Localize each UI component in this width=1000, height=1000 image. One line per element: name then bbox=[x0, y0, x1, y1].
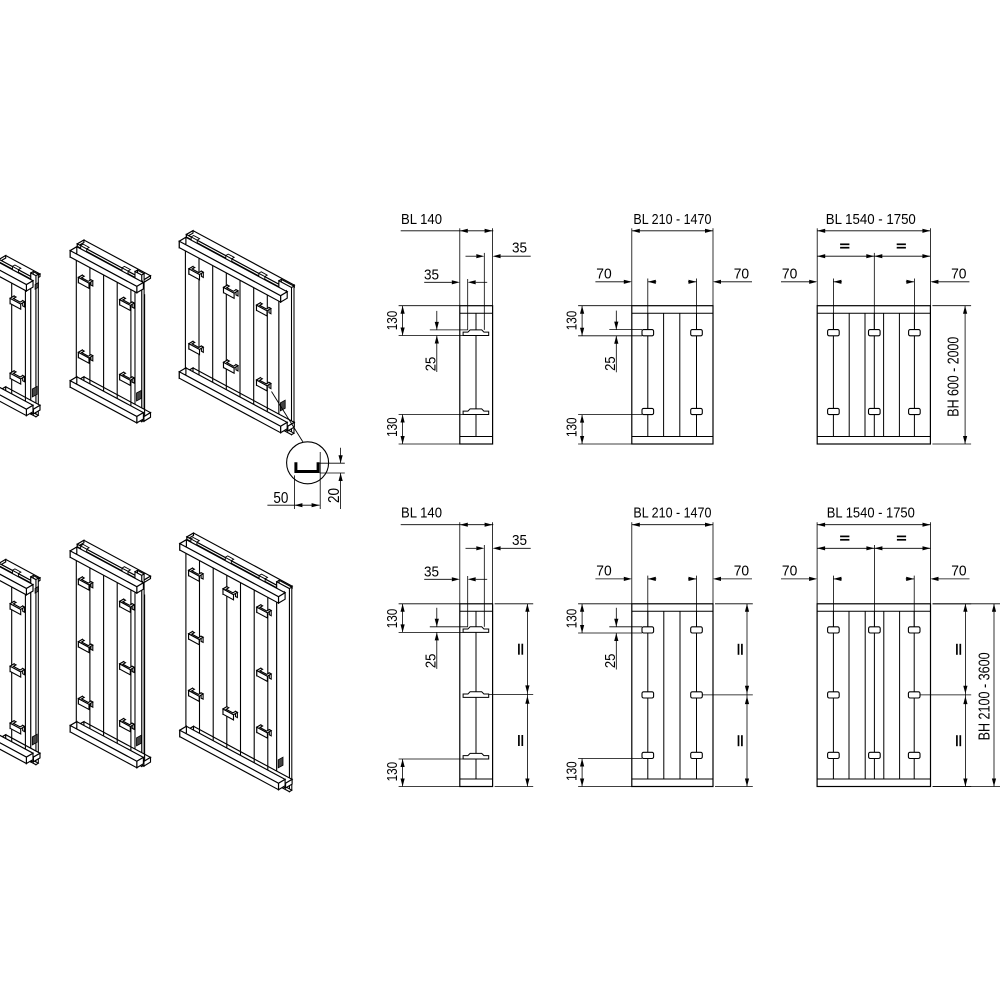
svg-text:130: 130 bbox=[564, 761, 581, 781]
svg-text:BL 140: BL 140 bbox=[401, 211, 442, 228]
svg-text:70: 70 bbox=[951, 265, 966, 282]
svg-text:70: 70 bbox=[951, 562, 966, 579]
svg-text:130: 130 bbox=[564, 311, 581, 331]
svg-text:130: 130 bbox=[384, 417, 401, 437]
svg-text:70: 70 bbox=[596, 265, 611, 282]
svg-text:20: 20 bbox=[326, 488, 343, 503]
svg-text:BL 140: BL 140 bbox=[401, 505, 442, 522]
svg-text:35: 35 bbox=[512, 532, 527, 549]
svg-text:130: 130 bbox=[384, 311, 401, 331]
svg-text:25: 25 bbox=[422, 357, 439, 372]
svg-text:BH 2100 - 3600: BH 2100 - 3600 bbox=[977, 652, 994, 740]
svg-text:35: 35 bbox=[424, 563, 439, 580]
svg-text:130: 130 bbox=[564, 609, 581, 629]
svg-text:70: 70 bbox=[782, 265, 797, 282]
svg-text:35: 35 bbox=[424, 266, 439, 283]
svg-text:70: 70 bbox=[782, 562, 797, 579]
svg-text:50: 50 bbox=[273, 490, 288, 507]
svg-text:130: 130 bbox=[384, 762, 401, 782]
svg-text:BL 1540 - 1750: BL 1540 - 1750 bbox=[827, 505, 915, 522]
svg-text:25: 25 bbox=[422, 654, 439, 669]
svg-text:25: 25 bbox=[602, 356, 619, 371]
svg-text:130: 130 bbox=[564, 418, 581, 438]
svg-text:130: 130 bbox=[384, 609, 401, 629]
svg-text:BH 600 - 2000: BH 600 - 2000 bbox=[946, 336, 963, 416]
svg-text:BL 210 - 1470: BL 210 - 1470 bbox=[633, 211, 711, 228]
svg-text:BL 1540 - 1750: BL 1540 - 1750 bbox=[826, 211, 916, 228]
svg-text:35: 35 bbox=[512, 240, 527, 257]
svg-text:70: 70 bbox=[734, 265, 749, 282]
svg-text:BL 210 - 1470: BL 210 - 1470 bbox=[633, 505, 711, 522]
svg-text:70: 70 bbox=[596, 562, 611, 579]
svg-text:70: 70 bbox=[734, 562, 749, 579]
svg-text:25: 25 bbox=[602, 654, 619, 669]
